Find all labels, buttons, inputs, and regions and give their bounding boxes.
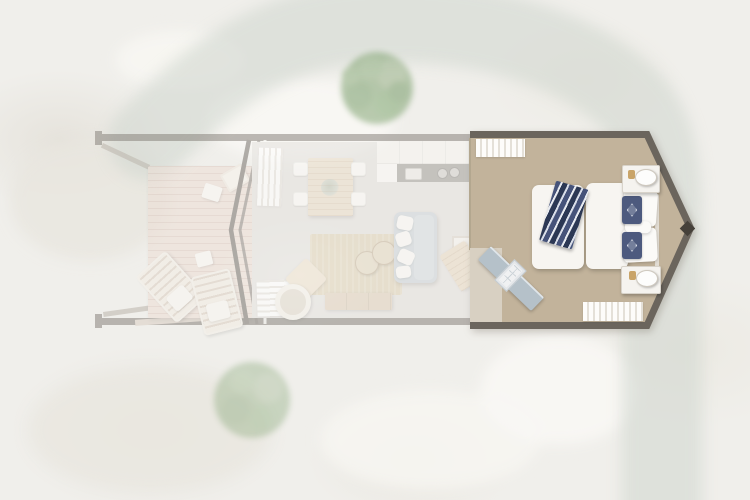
tree-north-icon bbox=[341, 52, 413, 124]
tree-south-icon bbox=[214, 362, 290, 438]
accent-pillow bbox=[622, 196, 642, 224]
table-lamp bbox=[636, 270, 658, 287]
accent-pillow bbox=[622, 232, 642, 259]
bedroom-living-divider bbox=[469, 138, 471, 250]
floorplan-scene bbox=[0, 0, 750, 500]
curtain bbox=[583, 302, 643, 321]
lamp-gold-base bbox=[629, 271, 636, 280]
lamp-gold-base bbox=[628, 170, 635, 179]
cabin-floorplan bbox=[95, 128, 695, 332]
table-lamp bbox=[635, 169, 657, 186]
curtain bbox=[476, 139, 525, 157]
